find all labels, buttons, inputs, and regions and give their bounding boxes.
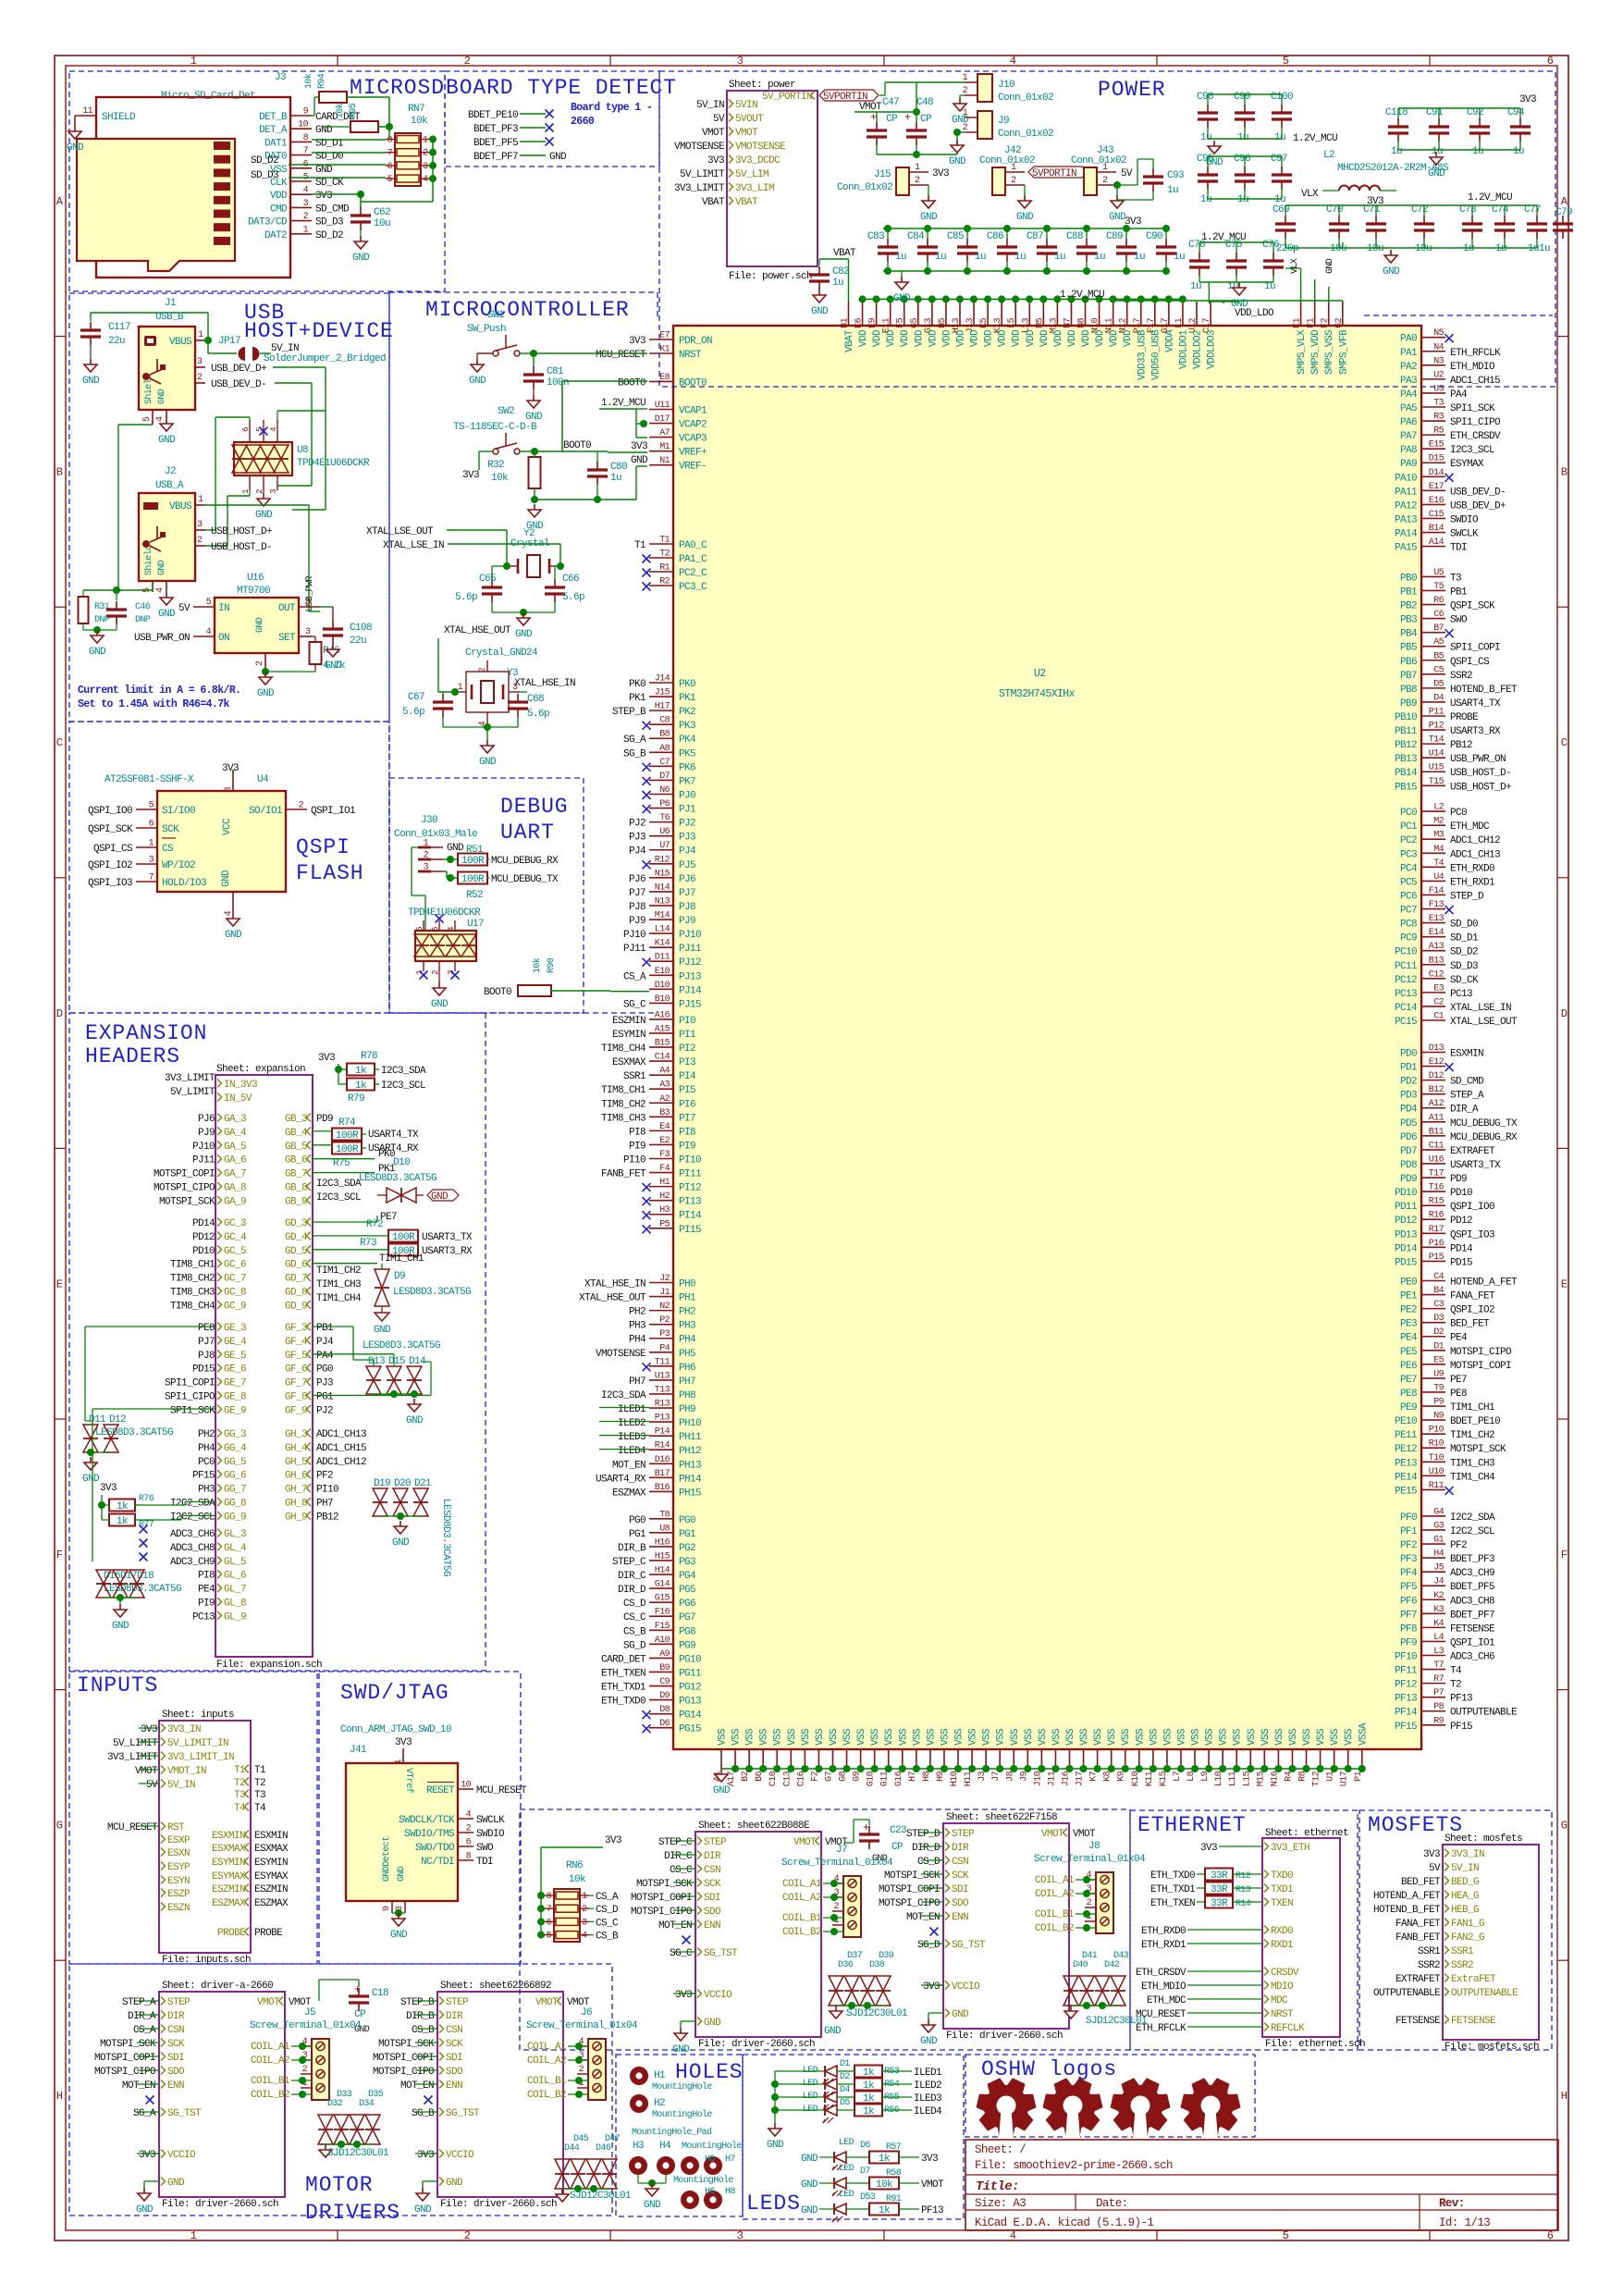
svg-text:QSPI_CS: QSPI_CS — [93, 844, 133, 855]
svg-text:PH2: PH2 — [679, 1307, 695, 1318]
svg-text:K2: K2 — [1433, 1591, 1444, 1601]
svg-text:U8: U8 — [297, 445, 308, 456]
svg-text:B16: B16 — [655, 1483, 670, 1493]
svg-text:MCU_DEBUG_TX: MCU_DEBUG_TX — [1450, 1118, 1518, 1129]
svg-text:D9: D9 — [659, 1691, 670, 1701]
svg-text:GND: GND — [112, 1621, 129, 1632]
svg-text:H3: H3 — [633, 2141, 644, 2152]
svg-text:2: 2 — [1011, 176, 1016, 186]
svg-text:C18: C18 — [372, 1988, 388, 1999]
svg-text:PD10: PD10 — [1450, 1188, 1472, 1199]
svg-text:C91: C91 — [1426, 107, 1444, 118]
svg-text:GC_7: GC_7 — [224, 1274, 246, 1285]
svg-text:GND: GND — [920, 2036, 938, 2047]
svg-text:4: 4 — [447, 927, 456, 932]
svg-text:1u: 1u — [1472, 146, 1483, 157]
svg-text:Conn_01x02: Conn_01x02 — [1071, 155, 1126, 167]
svg-text:C46: C46 — [135, 602, 151, 612]
svg-text:D11: D11 — [655, 953, 670, 963]
svg-text:SPI1_SCK: SPI1_SCK — [1450, 403, 1495, 414]
svg-text:QSPI_IO2: QSPI_IO2 — [88, 860, 132, 871]
svg-text:4: 4 — [582, 1932, 587, 1942]
svg-text:D15: D15 — [1429, 454, 1445, 464]
svg-text:T1: T1 — [234, 1765, 246, 1776]
svg-text:ADC1_CH12: ADC1_CH12 — [316, 1457, 366, 1468]
svg-text:Screw_Terminal_01x04: Screw_Terminal_01x04 — [526, 2020, 638, 2031]
svg-text:GND: GND — [352, 253, 370, 264]
svg-text:U7: U7 — [659, 841, 670, 851]
svg-text:R79: R79 — [348, 1093, 364, 1105]
svg-text:RN6: RN6 — [566, 1860, 583, 1871]
svg-text:C8: C8 — [659, 716, 670, 726]
svg-text:U13: U13 — [655, 1371, 670, 1381]
svg-text:STEP_D: STEP_D — [906, 1829, 941, 1840]
svg-text:TIM1_CH4: TIM1_CH4 — [1450, 1472, 1495, 1483]
svg-text:PK3: PK3 — [679, 721, 695, 732]
svg-text:PG0: PG0 — [629, 1515, 646, 1526]
svg-text:LESD8D3.3CAT5G: LESD8D3.3CAT5G — [359, 1173, 436, 1184]
svg-text:G5: G5 — [910, 317, 920, 327]
svg-text:5VOUT: 5VOUT — [735, 114, 764, 125]
svg-text:D36: D36 — [838, 1960, 854, 1970]
svg-text:VSS: VSS — [968, 1728, 979, 1746]
svg-text:GND: GND — [397, 1866, 407, 1882]
svg-text:220p: 220p — [1276, 243, 1298, 254]
svg-text:STEP_B: STEP_B — [400, 1997, 435, 2008]
svg-text:ILED4: ILED4 — [914, 2106, 942, 2117]
svg-text:GE_9: GE_9 — [224, 1405, 246, 1416]
svg-text:SPI1_CIPO: SPI1_CIPO — [165, 1392, 215, 1403]
svg-text:PH0: PH0 — [679, 1279, 695, 1290]
svg-text:B3: B3 — [659, 1108, 670, 1118]
svg-text:MOT_EN: MOT_EN — [906, 1912, 940, 1923]
svg-text:T3: T3 — [1450, 573, 1461, 584]
svg-text:OUT: OUT — [278, 603, 296, 614]
svg-text:TIM8_CH4: TIM8_CH4 — [170, 1301, 215, 1312]
svg-text:MCU_RESET: MCU_RESET — [107, 1822, 158, 1833]
svg-text:File: smoothiev2-prime-2660.sc: File: smoothiev2-prime-2660.sch — [975, 2159, 1173, 2172]
svg-text:ADC3_CH9: ADC3_CH9 — [170, 1557, 215, 1568]
svg-text:7: 7 — [149, 873, 154, 883]
svg-text:C117: C117 — [108, 322, 130, 333]
svg-text:PH9: PH9 — [679, 1404, 695, 1415]
svg-text:C1: C1 — [1433, 1012, 1444, 1022]
svg-text:PD9: PD9 — [1450, 1174, 1467, 1185]
svg-text:VMOT: VMOT — [1073, 1829, 1096, 1840]
svg-text:PC0: PC0 — [198, 1457, 215, 1468]
svg-text:DIR_C: DIR_C — [618, 1571, 646, 1582]
svg-text:E5: E5 — [1433, 1355, 1444, 1365]
svg-text:H4: H4 — [1433, 1549, 1444, 1560]
svg-text:VCCIO: VCCIO — [167, 2150, 196, 2161]
svg-text:VSS: VSS — [1205, 1728, 1216, 1746]
svg-text:U1: U1 — [1326, 1771, 1336, 1781]
svg-text:5V_IN: 5V_IN — [1451, 1863, 1479, 1874]
svg-text:5: 5 — [206, 598, 212, 608]
svg-text:J5: J5 — [1433, 1563, 1444, 1574]
svg-text:BDET_PF7: BDET_PF7 — [473, 152, 518, 163]
svg-text:SD_CK: SD_CK — [1450, 975, 1479, 986]
svg-text:COIL_B1: COIL_B1 — [251, 2076, 290, 2087]
svg-text:D45: D45 — [573, 2134, 589, 2144]
svg-text:T14: T14 — [1429, 735, 1445, 746]
svg-text:B17: B17 — [655, 1469, 670, 1479]
svg-text:B: B — [56, 466, 63, 479]
svg-text:BOOT0: BOOT0 — [618, 377, 646, 389]
svg-text:PC0: PC0 — [1400, 808, 1417, 819]
svg-text:VSS: VSS — [940, 1728, 951, 1746]
svg-text:GB_6: GB_6 — [285, 1155, 307, 1167]
svg-text:Conn_01x02: Conn_01x02 — [837, 182, 892, 193]
svg-text:GL_4: GL_4 — [224, 1543, 247, 1554]
svg-text:Screw_Terminal_01x04: Screw_Terminal_01x04 — [781, 1858, 893, 1869]
svg-text:VSS: VSS — [1162, 1728, 1174, 1746]
svg-text:SW1: SW1 — [487, 310, 505, 321]
svg-text:USART4_RX: USART4_RX — [596, 1474, 646, 1485]
svg-text:DAT2: DAT2 — [264, 230, 287, 241]
svg-text:4: 4 — [303, 186, 309, 196]
svg-text:PC11: PC11 — [1395, 961, 1418, 972]
svg-text:ADC3_CH8: ADC3_CH8 — [1450, 1596, 1494, 1607]
svg-text:2: 2 — [197, 536, 203, 546]
svg-text:ESXMIN: ESXMIN — [212, 1831, 245, 1842]
svg-text:ETH_RXD0: ETH_RXD0 — [1141, 1926, 1186, 1937]
svg-text:GG_6: GG_6 — [224, 1471, 246, 1482]
svg-text:PK5: PK5 — [679, 748, 695, 759]
svg-text:GF_9: GF_9 — [285, 1405, 307, 1416]
svg-text:3V3: 3V3 — [395, 1737, 412, 1748]
svg-text:SI/IO0: SI/IO0 — [162, 806, 195, 817]
svg-text:PK6: PK6 — [679, 762, 695, 773]
svg-text:2: 2 — [579, 2065, 584, 2075]
svg-text:ETHERNET: ETHERNET — [1137, 1813, 1247, 1837]
svg-text:3: 3 — [197, 357, 203, 367]
svg-text:GD_9: GD_9 — [285, 1301, 307, 1312]
svg-text:ADC3_CH6: ADC3_CH6 — [170, 1529, 215, 1540]
svg-text:K1: K1 — [659, 345, 670, 355]
svg-text:1u: 1u — [935, 252, 946, 263]
svg-text:GC_9: GC_9 — [224, 1301, 246, 1312]
svg-text:GB_8: GB_8 — [285, 1183, 307, 1194]
svg-text:EXTRAFET: EXTRAFET — [1450, 1146, 1495, 1157]
svg-text:G14: G14 — [655, 1580, 670, 1590]
svg-text:2: 2 — [424, 851, 429, 861]
svg-text:REFCLK: REFCLK — [1271, 2023, 1305, 2034]
svg-text:PC13: PC13 — [1395, 989, 1417, 1000]
svg-text:B6: B6 — [755, 1771, 765, 1781]
svg-text:VMOT: VMOT — [859, 102, 882, 113]
svg-text:C3: C3 — [1433, 1300, 1444, 1310]
svg-text:7: 7 — [303, 146, 309, 156]
svg-text:CS_B: CS_B — [596, 1932, 619, 1943]
svg-text:Conn_ARM_JTAG_SWD_10: Conn_ARM_JTAG_SWD_10 — [340, 1724, 451, 1735]
svg-text:T1: T1 — [634, 540, 646, 551]
svg-text:1u: 1u — [1167, 185, 1178, 196]
svg-text:A14: A14 — [1429, 537, 1445, 548]
svg-text:B4: B4 — [1433, 1286, 1444, 1296]
svg-text:VDD: VDD — [970, 329, 981, 347]
svg-text:HOLD/IO3: HOLD/IO3 — [162, 878, 206, 889]
svg-text:VSS: VSS — [1010, 1728, 1021, 1746]
svg-text:R16: R16 — [1429, 1211, 1445, 1221]
svg-text:HOTEND_A_FET: HOTEND_A_FET — [1450, 1278, 1518, 1289]
svg-text:ETH_RFCLK: ETH_RFCLK — [1136, 2023, 1187, 2034]
svg-text:R75: R75 — [333, 1158, 350, 1169]
svg-text:Shield: Shield — [143, 545, 154, 575]
svg-text:PB4: PB4 — [1400, 629, 1418, 640]
svg-text:C71: C71 — [1363, 204, 1381, 216]
svg-text:J2: J2 — [659, 1274, 670, 1284]
svg-text:1u: 1u — [1237, 194, 1248, 205]
svg-text:VMOTSENSE: VMOTSENSE — [674, 142, 725, 153]
svg-text:GH_5: GH_5 — [285, 1457, 307, 1468]
svg-text:BDET_PE10: BDET_PE10 — [468, 110, 518, 121]
svg-text:D20: D20 — [394, 1478, 411, 1489]
svg-text:D13: D13 — [1429, 1043, 1445, 1054]
svg-text:File: power.sch: File: power.sch — [729, 271, 812, 282]
svg-text:GND: GND — [952, 115, 969, 126]
svg-text:TXD0: TXD0 — [1271, 1870, 1293, 1882]
svg-text:J15: J15 — [655, 688, 670, 698]
svg-text:PE4: PE4 — [1400, 1333, 1418, 1344]
svg-text:CS_D: CS_D — [596, 1905, 619, 1916]
svg-text:PI6: PI6 — [679, 1099, 695, 1110]
svg-text:ESZMIN: ESZMIN — [612, 1016, 646, 1027]
svg-text:ESZMIN: ESZMIN — [254, 1884, 288, 1895]
svg-text:G16: G16 — [894, 1771, 904, 1786]
svg-text:D9: D9 — [394, 1271, 405, 1282]
svg-text:VCAP1: VCAP1 — [679, 406, 707, 417]
svg-text:USART4_TX: USART4_TX — [368, 1129, 419, 1141]
svg-text:H6: H6 — [705, 2187, 715, 2197]
svg-text:FETSENSE: FETSENSE — [1450, 1623, 1495, 1635]
svg-text:MountingHole: MountingHole — [673, 2175, 733, 2186]
svg-text:FETSENSE: FETSENSE — [1396, 2016, 1441, 2027]
svg-text:ETH_MDIO: ETH_MDIO — [1141, 1981, 1187, 1993]
svg-text:I2C3_SDA: I2C3_SDA — [316, 1179, 362, 1190]
svg-text:Id: 1/13: Id: 1/13 — [1439, 2216, 1490, 2229]
svg-text:VMOT: VMOT — [793, 1837, 817, 1848]
svg-text:MOTSPI_COPI: MOTSPI_COPI — [373, 2053, 434, 2064]
svg-text:XTAL_HSE_IN: XTAL_HSE_IN — [514, 678, 575, 689]
svg-text:H16: H16 — [655, 1537, 670, 1548]
svg-text:STEP_A: STEP_A — [122, 1997, 156, 2008]
svg-text:A13: A13 — [1429, 942, 1445, 952]
svg-text:VSS: VSS — [1093, 1728, 1104, 1746]
svg-text:SDO: SDO — [704, 1907, 721, 1918]
svg-text:5V: 5V — [178, 603, 191, 614]
svg-text:MountingHole: MountingHole — [652, 2109, 712, 2120]
svg-text:TIM8_CH2: TIM8_CH2 — [601, 1099, 646, 1110]
svg-text:GC_6: GC_6 — [224, 1260, 246, 1271]
svg-text:VDD50_USB: VDD50_USB — [1150, 329, 1162, 380]
svg-text:H4: H4 — [659, 2141, 671, 2152]
svg-text:C99: C99 — [1234, 92, 1250, 103]
svg-text:SDI: SDI — [446, 2053, 462, 2064]
svg-text:GC_3: GC_3 — [224, 1218, 246, 1229]
svg-text:VDD: VDD — [1067, 329, 1078, 347]
svg-text:PE3: PE3 — [1400, 1319, 1417, 1330]
svg-text:D16: D16 — [655, 1455, 670, 1465]
svg-text:PD12: PD12 — [192, 1232, 215, 1243]
svg-text:PH8: PH8 — [679, 1390, 695, 1401]
svg-text:VDD33_USB: VDD33_USB — [1137, 329, 1148, 380]
svg-text:VSS: VSS — [732, 1728, 743, 1746]
svg-text:CSN: CSN — [704, 1865, 720, 1876]
svg-text:K15: K15 — [1159, 1771, 1169, 1786]
svg-text:LESD8D3.3CAT5G: LESD8D3.3CAT5G — [363, 1340, 440, 1352]
svg-text:10: 10 — [461, 1781, 471, 1791]
svg-text:3V3: 3V3 — [139, 2150, 155, 2161]
svg-text:C47: C47 — [882, 97, 899, 108]
svg-text:PA1_C: PA1_C — [679, 554, 707, 565]
svg-text:GND: GND — [158, 435, 176, 446]
svg-text:C108: C108 — [350, 623, 372, 634]
svg-text:1k: 1k — [355, 1066, 367, 1077]
svg-text:C90: C90 — [1146, 231, 1162, 242]
svg-text:G11: G11 — [880, 1771, 891, 1786]
svg-text:Size: A3: Size: A3 — [975, 2197, 1026, 2210]
svg-text:HEADERS: HEADERS — [85, 1044, 180, 1068]
svg-text:C84: C84 — [907, 231, 925, 242]
svg-text:PJ3: PJ3 — [679, 833, 695, 844]
svg-text:GND: GND — [167, 2178, 185, 2189]
svg-text:GH_9: GH_9 — [285, 1512, 307, 1523]
svg-text:FAN1_G: FAN1_G — [1451, 1919, 1484, 1930]
svg-text:T11: T11 — [655, 1357, 670, 1367]
svg-text:6: 6 — [547, 1918, 552, 1928]
svg-text:ESXMIN: ESXMIN — [1450, 1049, 1483, 1060]
svg-text:GD_5: GD_5 — [285, 1246, 307, 1257]
svg-text:PD5: PD5 — [1400, 1118, 1417, 1129]
svg-text:MOTSPI_SCK: MOTSPI_SCK — [636, 1879, 693, 1890]
svg-text:ETH_MDIO: ETH_MDIO — [1450, 362, 1495, 373]
svg-text:BOARD TYPE DETECT: BOARD TYPE DETECT — [446, 76, 677, 100]
svg-text:G10: G10 — [867, 1771, 877, 1786]
svg-text:R13: R13 — [655, 1400, 670, 1410]
svg-text:R12: R12 — [1236, 1871, 1251, 1882]
svg-text:33R: 33R — [1211, 1884, 1228, 1895]
svg-text:T2: T2 — [659, 549, 670, 560]
svg-text:G: G — [56, 1820, 63, 1833]
svg-text:N1: N1 — [659, 456, 670, 466]
svg-text:5V: 5V — [1121, 168, 1133, 179]
svg-text:ADC1_CH13: ADC1_CH13 — [316, 1429, 366, 1440]
svg-text:1u: 1u — [1190, 281, 1201, 292]
svg-text:PH15: PH15 — [679, 1487, 701, 1499]
svg-text:ESXMAX: ESXMAX — [212, 1844, 246, 1855]
svg-text:U17: U17 — [467, 919, 484, 930]
svg-text:GND: GND — [549, 152, 567, 163]
svg-text:RESET: RESET — [426, 1785, 455, 1796]
svg-text:PH5: PH5 — [679, 1349, 695, 1360]
svg-text:SG_B: SG_B — [412, 2108, 435, 2119]
svg-text:ADC3_CH6: ADC3_CH6 — [1450, 1652, 1494, 1663]
svg-text:D34: D34 — [359, 2099, 375, 2109]
svg-text:RXD1: RXD1 — [1271, 1940, 1294, 1951]
svg-text:C5: C5 — [1433, 665, 1444, 675]
svg-text:VBAT: VBAT — [833, 248, 856, 259]
svg-text:1k: 1k — [117, 1516, 129, 1527]
svg-text:PH2: PH2 — [198, 1429, 215, 1440]
svg-text:GD_8: GD_8 — [285, 1288, 307, 1299]
svg-text:D7: D7 — [659, 772, 670, 782]
svg-text:MOT_EN: MOT_EN — [400, 2080, 434, 2092]
svg-text:T8: T8 — [659, 1510, 670, 1520]
svg-text:U9: U9 — [1433, 1369, 1444, 1379]
svg-text:SMPS_VLX: SMPS_VLX — [1297, 329, 1308, 375]
svg-text:VDDLDO2: VDDLDO2 — [1193, 330, 1204, 369]
svg-text:PC1: PC1 — [1400, 821, 1418, 833]
svg-text:1: 1 — [149, 839, 154, 849]
svg-text:COIL_A1: COIL_A1 — [527, 2042, 567, 2053]
svg-text:BDET_PF5: BDET_PF5 — [473, 138, 518, 149]
svg-text:4: 4 — [466, 1810, 472, 1821]
svg-text:POWER: POWER — [1098, 78, 1166, 102]
svg-text:ESYMAX: ESYMAX — [212, 1871, 246, 1882]
svg-text:R76: R76 — [139, 1494, 154, 1504]
svg-text:H7: H7 — [725, 2154, 735, 2165]
svg-text:1: 1 — [191, 55, 197, 68]
svg-text:PD7: PD7 — [1400, 1146, 1417, 1157]
svg-text:3V3_ETH: 3V3_ETH — [1271, 1843, 1309, 1854]
svg-text:VSS: VSS — [1247, 1728, 1258, 1746]
svg-text:H5: H5 — [938, 317, 948, 327]
svg-text:ESXMAX: ESXMAX — [612, 1057, 646, 1068]
svg-text:COIL_A1: COIL_A1 — [782, 1879, 822, 1890]
svg-text:C92: C92 — [1467, 107, 1483, 118]
svg-text:R73: R73 — [360, 1238, 376, 1249]
svg-text:PI2: PI2 — [679, 1043, 695, 1055]
svg-text:1u: 1u — [975, 252, 986, 263]
svg-text:ETH_CRSDV: ETH_CRSDV — [1450, 431, 1501, 442]
svg-text:P4: P4 — [659, 1343, 670, 1353]
svg-text:F14: F14 — [1429, 886, 1445, 896]
svg-text:PF15: PF15 — [192, 1471, 215, 1482]
svg-text:3: 3 — [305, 627, 311, 637]
svg-text:L1: L1 — [1174, 317, 1185, 327]
svg-text:T4: T4 — [1450, 1666, 1462, 1677]
svg-text:2: 2 — [466, 1824, 472, 1834]
svg-text:MT9700: MT9700 — [237, 586, 270, 597]
svg-text:J14: J14 — [655, 674, 670, 685]
svg-text:PI8: PI8 — [198, 1571, 215, 1582]
svg-text:SD_D3: SD_D3 — [251, 170, 278, 181]
svg-text:T3: T3 — [254, 1790, 265, 1801]
svg-text:GND: GND — [325, 660, 342, 672]
svg-text:3: 3 — [737, 2229, 744, 2242]
svg-text:A10: A10 — [655, 1636, 670, 1646]
svg-text:1k: 1k — [863, 2106, 875, 2117]
svg-text:COIL_A1: COIL_A1 — [251, 2042, 290, 2053]
svg-text:ETH_RXD0: ETH_RXD0 — [1450, 863, 1494, 874]
svg-text:CP: CP — [920, 114, 932, 125]
svg-text:PD13: PD13 — [1395, 1229, 1417, 1241]
svg-text:PI10: PI10 — [316, 1485, 338, 1496]
svg-text:PA7: PA7 — [1400, 431, 1417, 442]
svg-text:PJ10: PJ10 — [192, 1142, 215, 1153]
svg-text:PH2: PH2 — [629, 1307, 646, 1318]
svg-text:VSS: VSS — [870, 1728, 881, 1746]
svg-text:SSR2: SSR2 — [1451, 1960, 1473, 1971]
svg-text:PA1: PA1 — [1400, 348, 1418, 359]
svg-text:C7: C7 — [659, 758, 670, 768]
svg-text:COIL_B2: COIL_B2 — [251, 2090, 289, 2101]
svg-text:File: driver-2660.sch: File: driver-2660.sch — [440, 2199, 557, 2210]
svg-text:L14: L14 — [655, 925, 670, 935]
svg-text:HOTEND_A_FET: HOTEND_A_FET — [1373, 1891, 1441, 1902]
svg-text:T1: T1 — [254, 1765, 266, 1776]
